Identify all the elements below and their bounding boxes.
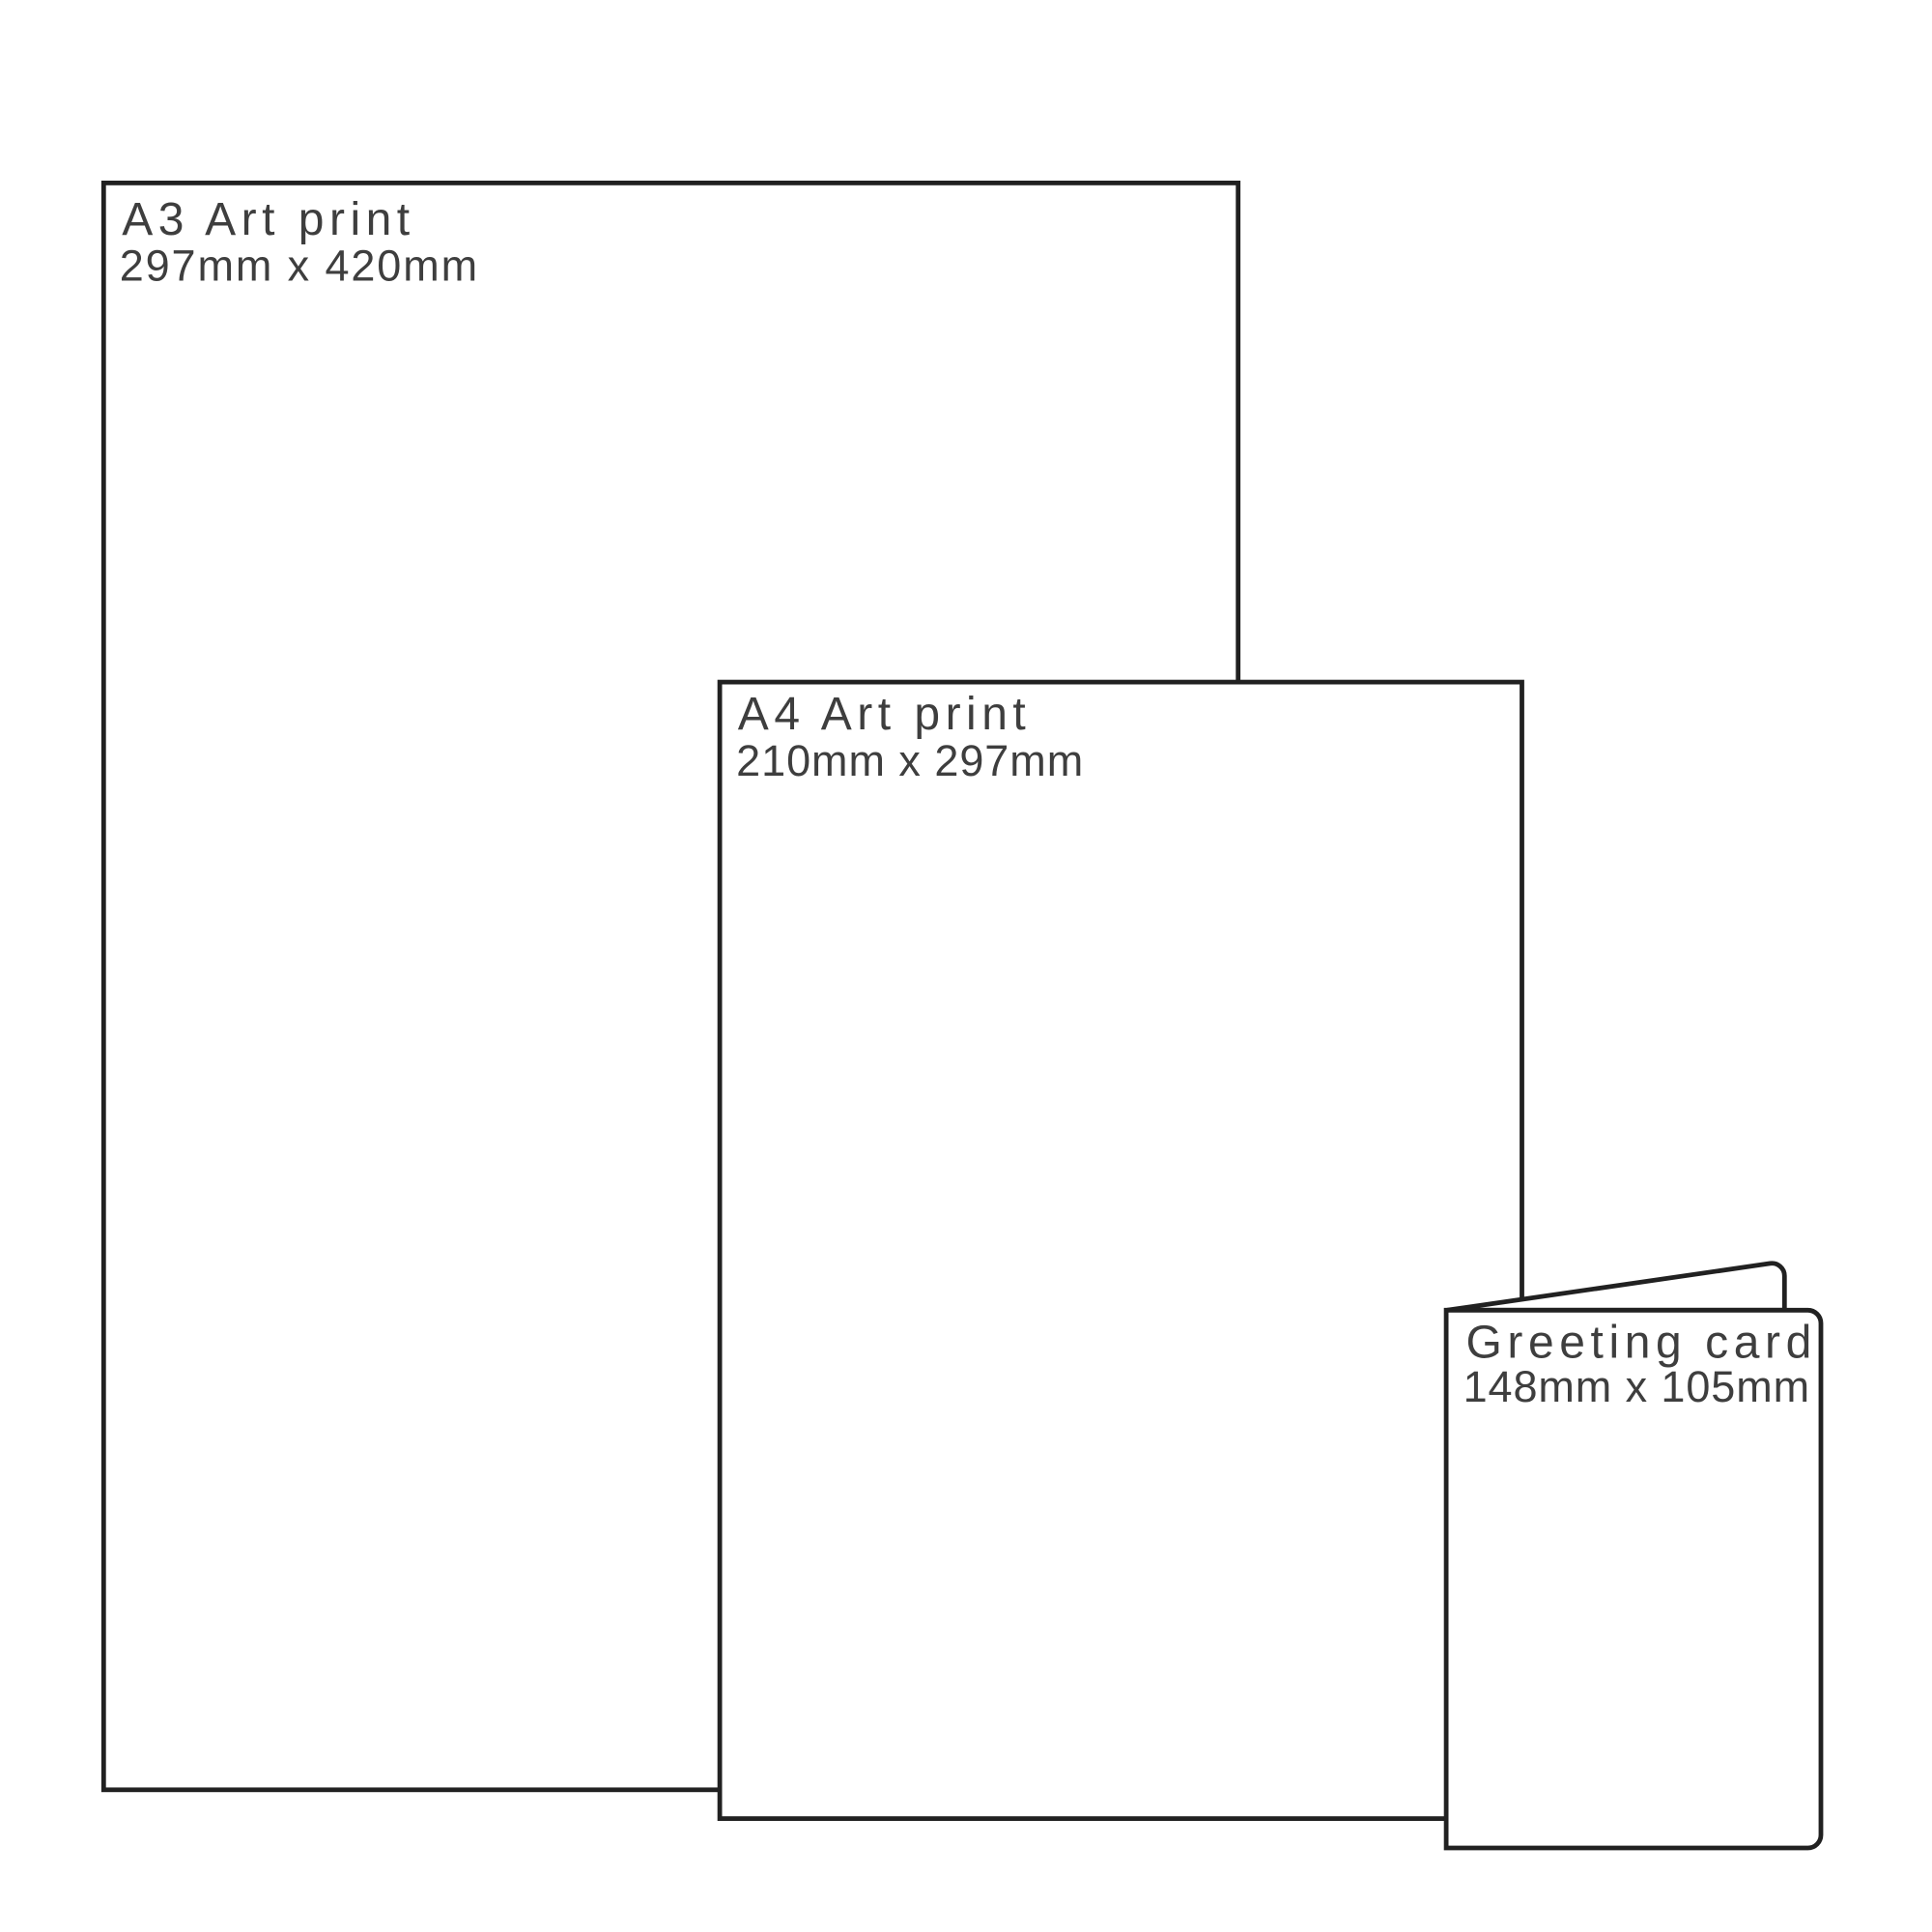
svg-text:A3 Art print: A3 Art print [122,194,414,245]
svg-text:297mm x 420mm: 297mm x 420mm [120,241,479,290]
svg-text:210mm x 297mm: 210mm x 297mm [736,736,1084,785]
svg-text:148mm x 105mm: 148mm x 105mm [1463,1362,1810,1411]
svg-text:A4 Art print: A4 Art print [738,689,1031,740]
svg-text:Greeting card: Greeting card [1466,1318,1817,1369]
